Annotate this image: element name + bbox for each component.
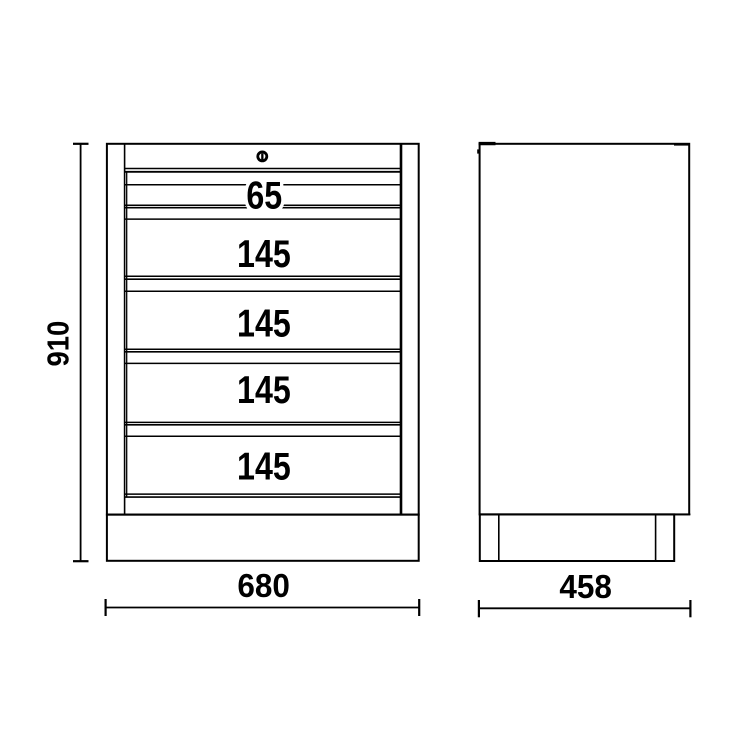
svg-text:145: 145 — [237, 302, 291, 345]
svg-text:65: 65 — [246, 174, 282, 217]
svg-text:910: 910 — [42, 321, 76, 367]
svg-text:680: 680 — [237, 567, 290, 604]
svg-text:145: 145 — [237, 368, 291, 411]
svg-text:145: 145 — [237, 232, 291, 275]
svg-text:458: 458 — [559, 568, 612, 605]
svg-text:145: 145 — [237, 445, 291, 488]
